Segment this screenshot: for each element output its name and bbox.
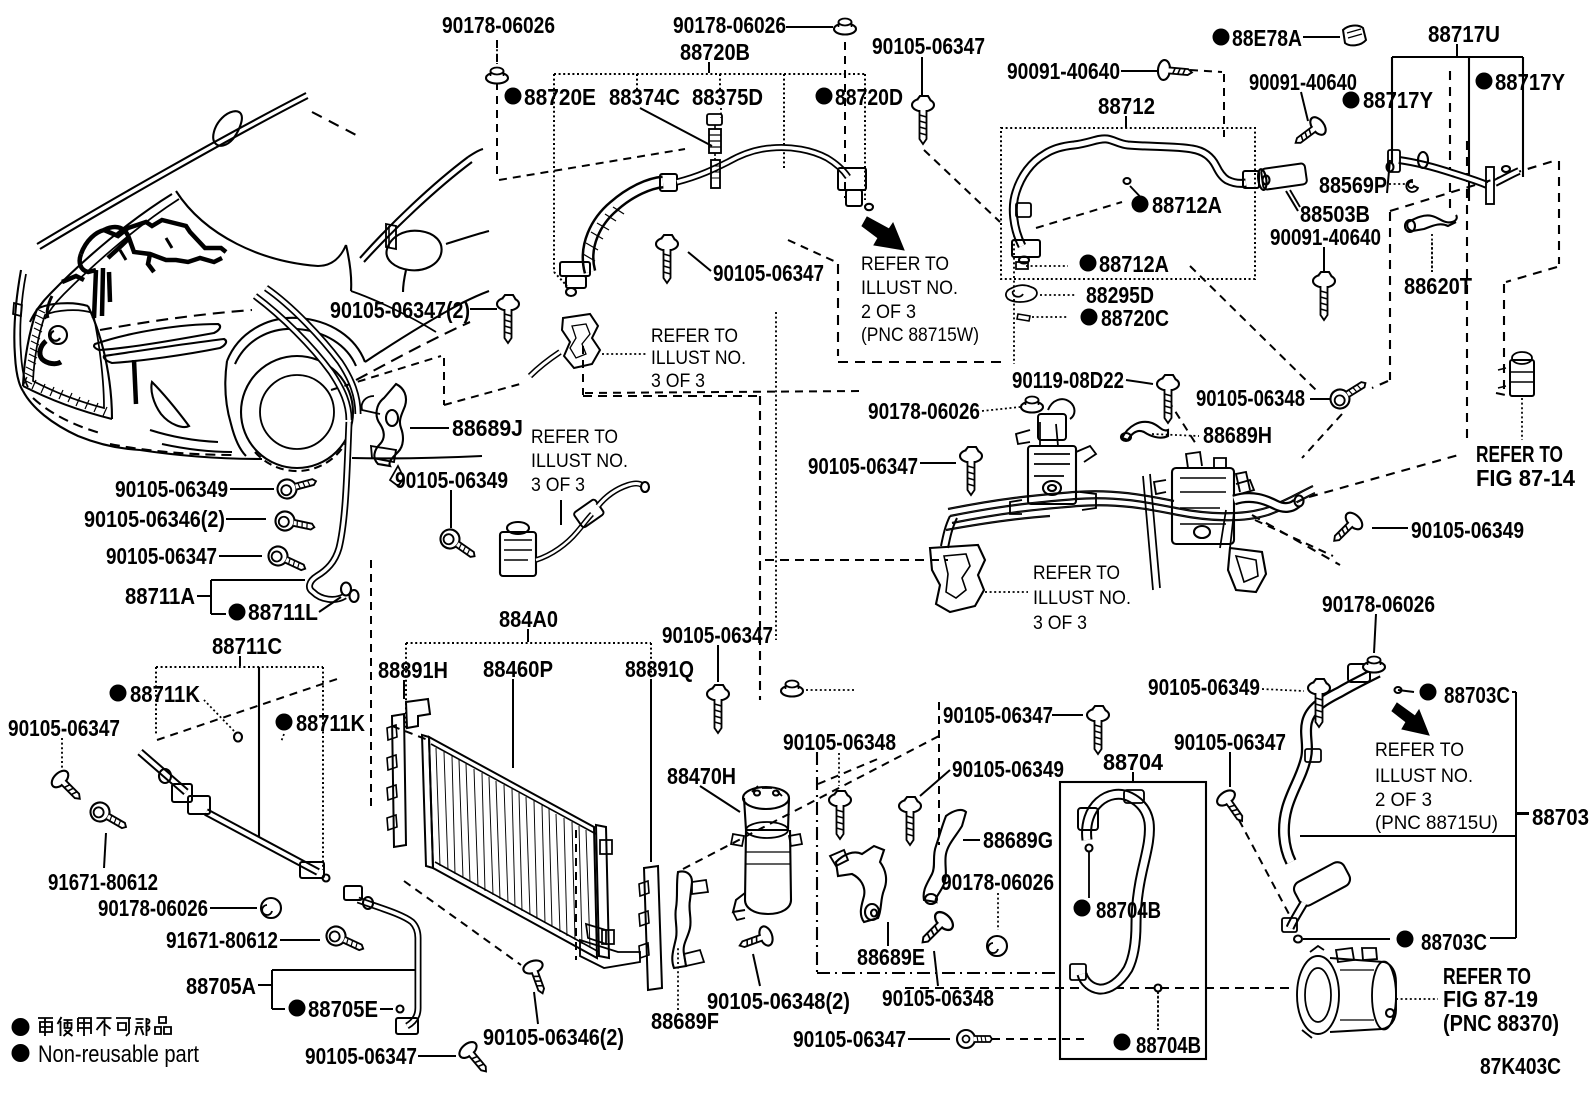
svg-text:88689H: 88689H <box>1203 422 1272 448</box>
svg-text:88703C: 88703C <box>1421 929 1487 955</box>
svg-text:88470H: 88470H <box>667 763 736 789</box>
svg-text:88712: 88712 <box>1098 93 1155 119</box>
svg-text:88711A: 88711A <box>125 583 195 609</box>
svg-text:88711C: 88711C <box>212 633 282 659</box>
svg-text:91671-80612: 91671-80612 <box>48 869 158 895</box>
svg-text:90178-06026: 90178-06026 <box>868 398 980 424</box>
svg-text:90105-06347: 90105-06347 <box>662 622 773 648</box>
svg-text:(PNC 88715U): (PNC 88715U) <box>1375 813 1498 834</box>
svg-text:90105-06347: 90105-06347 <box>1174 729 1286 755</box>
svg-text:3 OF 3: 3 OF 3 <box>651 371 705 392</box>
svg-text:90178-06026: 90178-06026 <box>673 12 786 38</box>
svg-text:90105-06349: 90105-06349 <box>1148 674 1260 700</box>
svg-text:88374C: 88374C <box>609 84 680 110</box>
svg-text:90105-06349: 90105-06349 <box>115 476 228 502</box>
svg-text:REFER TO: REFER TO <box>1476 441 1563 467</box>
svg-text:REFER TO: REFER TO <box>1375 740 1464 761</box>
svg-text:88460P: 88460P <box>483 656 553 682</box>
svg-text:REFER TO: REFER TO <box>531 427 618 448</box>
svg-text:90105-06347: 90105-06347 <box>106 543 217 569</box>
svg-text:90105-06349: 90105-06349 <box>952 756 1064 782</box>
svg-text:90105-06347: 90105-06347 <box>808 453 918 479</box>
svg-text:90105-06347: 90105-06347 <box>872 33 985 59</box>
svg-text:88717Y: 88717Y <box>1363 87 1433 113</box>
svg-text:90105-06347: 90105-06347 <box>8 715 120 741</box>
svg-text:Non-reusable part: Non-reusable part <box>38 1041 199 1068</box>
svg-text:90105-06347: 90105-06347 <box>793 1026 906 1052</box>
svg-text:88711K: 88711K <box>130 681 200 707</box>
svg-text:(PNC 88370): (PNC 88370) <box>1443 1010 1559 1036</box>
svg-text:90091-40640: 90091-40640 <box>1007 58 1120 84</box>
svg-text:88620T: 88620T <box>1404 273 1472 299</box>
svg-text:90105-06347(2): 90105-06347(2) <box>330 297 470 323</box>
svg-text:90105-06348: 90105-06348 <box>1196 385 1305 411</box>
svg-text:88720E: 88720E <box>524 84 596 110</box>
svg-text:3 OF 3: 3 OF 3 <box>531 475 585 496</box>
svg-text:87K403C: 87K403C <box>1480 1053 1561 1079</box>
svg-text:88705E: 88705E <box>308 996 378 1022</box>
svg-text:90119-08D22: 90119-08D22 <box>1012 367 1124 393</box>
svg-text:90105-06349: 90105-06349 <box>1411 517 1524 543</box>
svg-text:88375D: 88375D <box>692 84 763 110</box>
svg-text:ILLUST NO.: ILLUST NO. <box>1033 588 1131 609</box>
svg-text:ILLUST NO.: ILLUST NO. <box>651 348 746 369</box>
svg-text:REFER TO: REFER TO <box>651 326 738 347</box>
svg-text:88891Q: 88891Q <box>625 656 694 682</box>
svg-text:88711K: 88711K <box>296 710 365 736</box>
svg-text:88720D: 88720D <box>835 84 903 110</box>
svg-text:884A0: 884A0 <box>499 606 558 632</box>
svg-text:REFER TO: REFER TO <box>1033 563 1120 584</box>
svg-text:88689F: 88689F <box>651 1008 719 1034</box>
svg-text:88891H: 88891H <box>378 657 448 683</box>
svg-text:(PNC 88715W): (PNC 88715W) <box>861 325 979 346</box>
svg-text:90178-06026: 90178-06026 <box>98 895 208 921</box>
svg-text:FIG 87-19: FIG 87-19 <box>1443 986 1538 1012</box>
svg-text:88703: 88703 <box>1532 804 1589 830</box>
svg-text:90105-06347: 90105-06347 <box>943 702 1053 728</box>
svg-text:2 OF 3: 2 OF 3 <box>1375 790 1432 811</box>
svg-text:88704B: 88704B <box>1136 1032 1201 1058</box>
svg-text:90091-40640: 90091-40640 <box>1270 224 1381 250</box>
svg-text:88704: 88704 <box>1103 749 1163 775</box>
svg-text:3 OF 3: 3 OF 3 <box>1033 613 1087 634</box>
svg-text:88689E: 88689E <box>857 944 925 970</box>
svg-text:88711L: 88711L <box>248 599 318 625</box>
svg-text:88717Y: 88717Y <box>1495 69 1565 95</box>
svg-text:88712A: 88712A <box>1099 251 1169 277</box>
svg-text:90178-06026: 90178-06026 <box>442 12 555 38</box>
svg-text:90105-06346(2): 90105-06346(2) <box>483 1024 624 1050</box>
svg-text:90105-06347: 90105-06347 <box>713 260 824 286</box>
svg-text:88704B: 88704B <box>1096 897 1161 923</box>
svg-text:88689J: 88689J <box>452 415 523 441</box>
svg-text:90091-40640: 90091-40640 <box>1249 69 1357 95</box>
svg-text:88E78A: 88E78A <box>1232 25 1302 51</box>
svg-text:90105-06348(2): 90105-06348(2) <box>707 988 850 1014</box>
svg-text:90105-06347: 90105-06347 <box>305 1043 417 1069</box>
svg-text:ILLUST NO.: ILLUST NO. <box>531 451 628 472</box>
svg-text:88705A: 88705A <box>186 973 256 999</box>
svg-text:88703C: 88703C <box>1444 682 1510 708</box>
svg-text:90105-06348: 90105-06348 <box>882 985 994 1011</box>
svg-text:ILLUST NO.: ILLUST NO. <box>1375 766 1473 787</box>
svg-text:90105-06346(2): 90105-06346(2) <box>84 506 225 532</box>
svg-text:90178-06026: 90178-06026 <box>941 869 1054 895</box>
svg-text:91671-80612: 91671-80612 <box>166 927 278 953</box>
svg-text:88712A: 88712A <box>1152 192 1222 218</box>
svg-text:FIG 87-14: FIG 87-14 <box>1476 465 1575 491</box>
svg-text:ILLUST NO.: ILLUST NO. <box>861 278 958 299</box>
svg-text:88569P: 88569P <box>1319 172 1387 198</box>
svg-text:2 OF 3: 2 OF 3 <box>861 302 916 323</box>
svg-text:88689G: 88689G <box>983 827 1053 853</box>
svg-text:90105-06348: 90105-06348 <box>783 729 896 755</box>
svg-text:REFER TO: REFER TO <box>861 254 949 275</box>
svg-text:88717U: 88717U <box>1428 21 1500 47</box>
svg-text:88720B: 88720B <box>680 39 750 65</box>
svg-text:88720C: 88720C <box>1101 305 1169 331</box>
svg-text:90105-06349: 90105-06349 <box>395 467 508 493</box>
svg-text:90178-06026: 90178-06026 <box>1322 591 1435 617</box>
